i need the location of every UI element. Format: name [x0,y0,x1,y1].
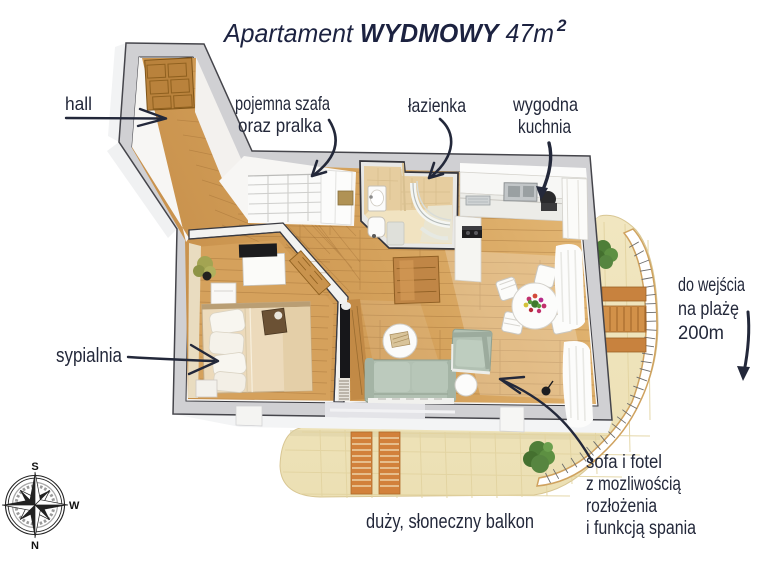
svg-text:2: 2 [556,16,567,35]
svg-text:hall: hall [65,94,92,114]
svg-text:do wejścia: do wejścia [678,274,745,296]
svg-text:N: N [31,540,39,552]
svg-text:Apartament WYDMOWY 47m: Apartament WYDMOWY 47m [222,18,554,48]
svg-text:sypialnia: sypialnia [56,345,123,367]
svg-text:200m: 200m [678,322,724,344]
svg-text:duży, słoneczny balkon: duży, słoneczny balkon [366,511,534,533]
svg-text:pojemna szafa: pojemna szafa [235,93,330,115]
svg-text:sofa i fotel: sofa i fotel [586,452,662,473]
svg-text:oraz pralka: oraz pralka [238,115,322,137]
svg-text:kuchnia: kuchnia [518,116,571,138]
svg-text:W: W [69,500,80,512]
svg-text:wygodna: wygodna [512,94,578,116]
svg-text:S: S [31,461,38,473]
svg-text:rozłożenia: rozłożenia [586,496,657,517]
svg-text:i funkcją spania: i funkcją spania [586,518,696,539]
svg-text:łazienka: łazienka [408,95,466,117]
svg-text:z mozliwością: z mozliwością [586,474,681,495]
svg-text:na plażę: na plażę [678,298,739,320]
